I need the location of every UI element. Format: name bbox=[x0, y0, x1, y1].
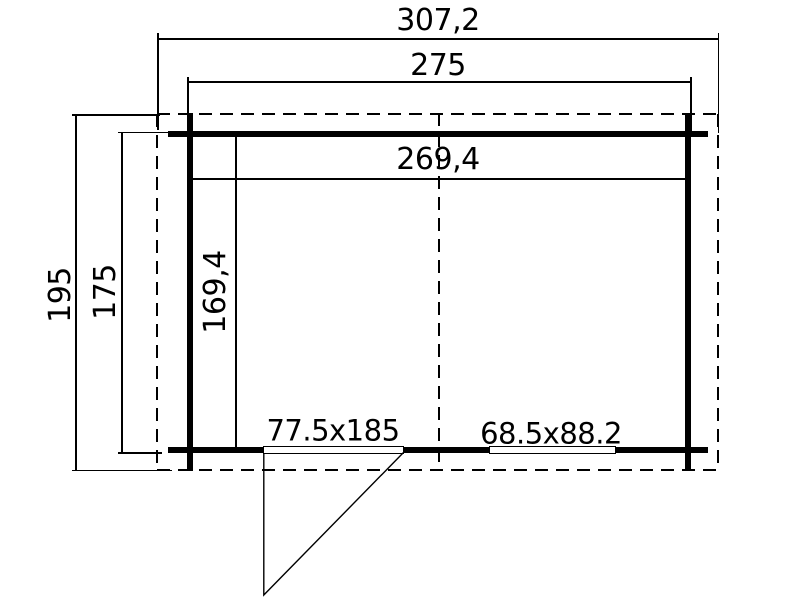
wall-bottom-middle bbox=[404, 447, 489, 453]
dim-outer-depth-ext-top bbox=[118, 132, 170, 133]
dim-roof-width-line bbox=[158, 38, 719, 40]
dim-inner-depth-label: 169,4 bbox=[201, 250, 231, 333]
wall-left bbox=[187, 113, 193, 471]
roof-outline-right bbox=[717, 114, 719, 470]
dim-inner-width-line bbox=[193, 178, 685, 180]
dim-roof-depth-ext-top bbox=[72, 114, 160, 115]
wall-bottom-left bbox=[168, 447, 263, 453]
door-size-label: 77.5x185 bbox=[266, 417, 399, 446]
dim-outer-depth-ext-bottom bbox=[118, 452, 162, 453]
dim-roof-depth-ext-bottom bbox=[72, 470, 172, 471]
dim-inner-depth-line bbox=[235, 137, 237, 447]
window-size-label: 68.5x88.2 bbox=[480, 420, 622, 449]
dim-roof-width-ext-right bbox=[718, 33, 719, 133]
dim-inner-width-label: 269,4 bbox=[396, 145, 479, 175]
dim-roof-depth-label: 195 bbox=[46, 267, 76, 323]
wall-bottom-right bbox=[616, 447, 708, 453]
wall-top bbox=[168, 131, 708, 137]
roof-outline-left bbox=[156, 114, 158, 470]
dim-roof-width-label: 307,2 bbox=[396, 6, 479, 36]
floor-plan: 307,2 275 195 175 269,4 169,4 77.5x185 6… bbox=[0, 0, 800, 600]
wall-right bbox=[685, 113, 691, 471]
dim-outer-depth-label: 175 bbox=[91, 264, 121, 320]
dim-outer-width-label: 275 bbox=[410, 51, 466, 81]
